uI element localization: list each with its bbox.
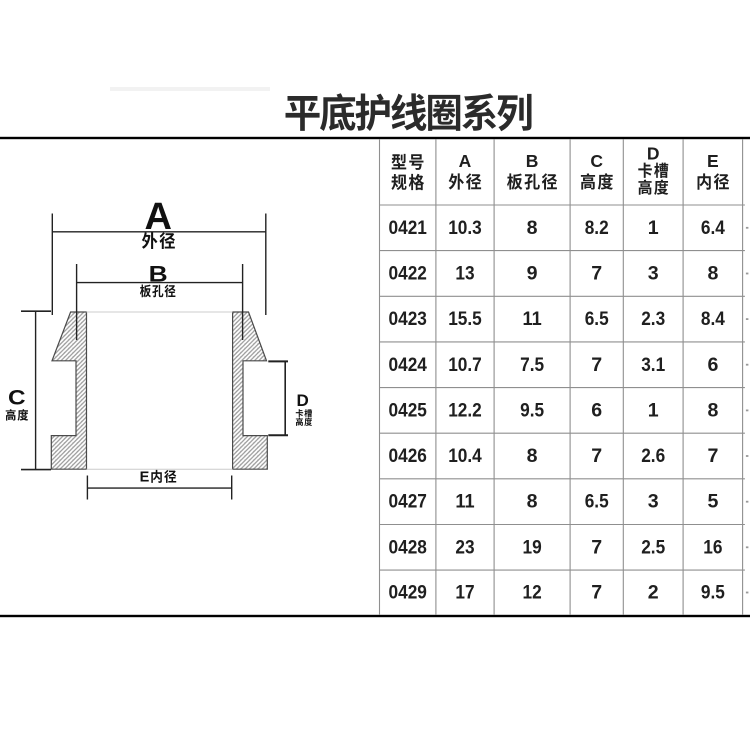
svg-text:0428: 0428	[389, 536, 427, 558]
svg-text:2.3: 2.3	[641, 308, 665, 330]
svg-text:C: C	[590, 151, 603, 171]
svg-text:3: 3	[648, 263, 659, 285]
svg-text:D: D	[647, 143, 660, 163]
svg-text:3: 3	[648, 491, 659, 513]
svg-text:7: 7	[591, 536, 602, 558]
svg-text:17: 17	[455, 582, 474, 604]
svg-text:8.4: 8.4	[701, 308, 725, 330]
svg-text:8: 8	[527, 217, 538, 239]
svg-text:E: E	[140, 470, 150, 486]
svg-text:7: 7	[707, 445, 718, 467]
svg-text:0426: 0426	[389, 445, 427, 467]
svg-text:16: 16	[703, 536, 722, 558]
svg-text:0421: 0421	[389, 217, 427, 239]
svg-text:B: B	[526, 151, 539, 171]
svg-text:A: A	[144, 196, 171, 238]
svg-text:11: 11	[523, 308, 542, 330]
svg-text:8.2: 8.2	[585, 217, 609, 239]
svg-text:6: 6	[707, 354, 718, 376]
svg-text:7.5: 7.5	[520, 354, 544, 376]
svg-text:7: 7	[591, 582, 602, 604]
svg-text:B: B	[149, 262, 168, 287]
svg-text:0427: 0427	[389, 491, 427, 513]
svg-text:6.4: 6.4	[701, 217, 725, 239]
svg-text:8: 8	[707, 399, 718, 421]
svg-text:6.5: 6.5	[585, 308, 609, 330]
svg-text:10.3: 10.3	[448, 217, 482, 239]
svg-text:15.5: 15.5	[448, 308, 482, 330]
svg-text:D: D	[296, 391, 308, 410]
svg-text:10.7: 10.7	[448, 354, 482, 376]
svg-text:0423: 0423	[389, 308, 427, 330]
svg-text:7: 7	[591, 354, 602, 376]
svg-text:0429: 0429	[389, 582, 427, 604]
svg-text:0422: 0422	[389, 263, 427, 285]
svg-text:12: 12	[523, 582, 542, 604]
svg-text:9.5: 9.5	[701, 582, 725, 604]
svg-text:8: 8	[527, 491, 538, 513]
svg-text:8: 8	[707, 263, 718, 285]
svg-text:23: 23	[455, 536, 474, 558]
svg-text:1: 1	[648, 217, 659, 239]
svg-text:6.5: 6.5	[585, 491, 609, 513]
svg-text:1: 1	[648, 399, 659, 421]
svg-text:6: 6	[591, 399, 602, 421]
svg-text:2: 2	[648, 582, 659, 604]
svg-text:7: 7	[591, 445, 602, 467]
svg-text:8: 8	[527, 445, 538, 467]
svg-text:E: E	[707, 151, 719, 171]
svg-text:0425: 0425	[389, 399, 427, 421]
svg-text:19: 19	[523, 536, 542, 558]
svg-text:5: 5	[707, 491, 718, 513]
svg-text:C: C	[8, 387, 26, 410]
svg-text:2.5: 2.5	[641, 536, 665, 558]
svg-text:10.4: 10.4	[448, 445, 482, 467]
svg-text:9: 9	[527, 263, 538, 285]
svg-text:12.2: 12.2	[448, 399, 482, 421]
svg-text:11: 11	[455, 491, 474, 513]
svg-text:3.1: 3.1	[641, 354, 665, 376]
svg-text:9.5: 9.5	[520, 399, 544, 421]
svg-text:0424: 0424	[389, 354, 427, 376]
svg-text:2.6: 2.6	[641, 445, 665, 467]
svg-text:13: 13	[455, 263, 474, 285]
svg-text:7: 7	[591, 263, 602, 285]
svg-text:A: A	[459, 151, 472, 171]
